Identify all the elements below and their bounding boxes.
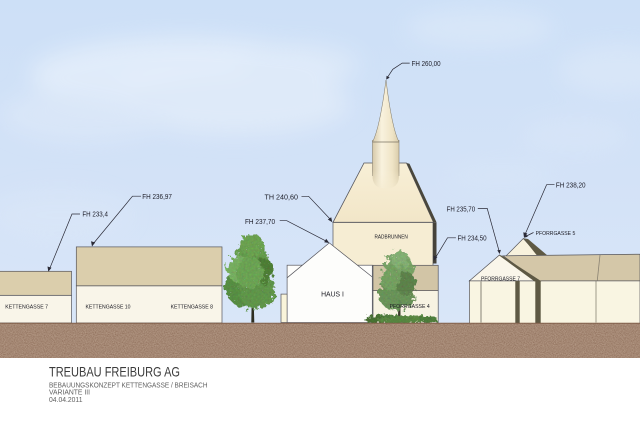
svg-text:KETTENGASSE 8: KETTENGASSE 8 (171, 305, 213, 311)
svg-text:PFORRGASSE 4: PFORRGASSE 4 (390, 304, 430, 310)
svg-text:04.04.2011: 04.04.2011 (49, 395, 83, 404)
svg-text:FH 238,20: FH 238,20 (556, 183, 586, 190)
svg-text:KETTENGASSE 7: KETTENGASSE 7 (5, 305, 48, 311)
svg-text:TREUBAU FREIBURG AG: TREUBAU FREIBURG AG (49, 365, 180, 380)
svg-text:FH 233,4: FH 233,4 (82, 212, 108, 219)
svg-text:PFORRGASSE 7: PFORRGASSE 7 (481, 276, 520, 282)
svg-text:FH 260,00: FH 260,00 (412, 61, 441, 68)
svg-text:FH 234,50: FH 234,50 (458, 236, 487, 243)
svg-text:HAUS I: HAUS I (321, 290, 344, 299)
svg-text:TH 240,60: TH 240,60 (265, 194, 299, 201)
svg-text:FH 235,70: FH 235,70 (447, 206, 476, 213)
svg-text:RADBRUNNEN: RADBRUNNEN (375, 234, 408, 240)
svg-text:PFORRGASSE 5: PFORRGASSE 5 (536, 231, 576, 237)
svg-text:KETTENGASSE 10: KETTENGASSE 10 (86, 305, 131, 311)
svg-text:FH 237,70: FH 237,70 (245, 219, 275, 226)
svg-text:FH 236,97: FH 236,97 (142, 194, 172, 201)
